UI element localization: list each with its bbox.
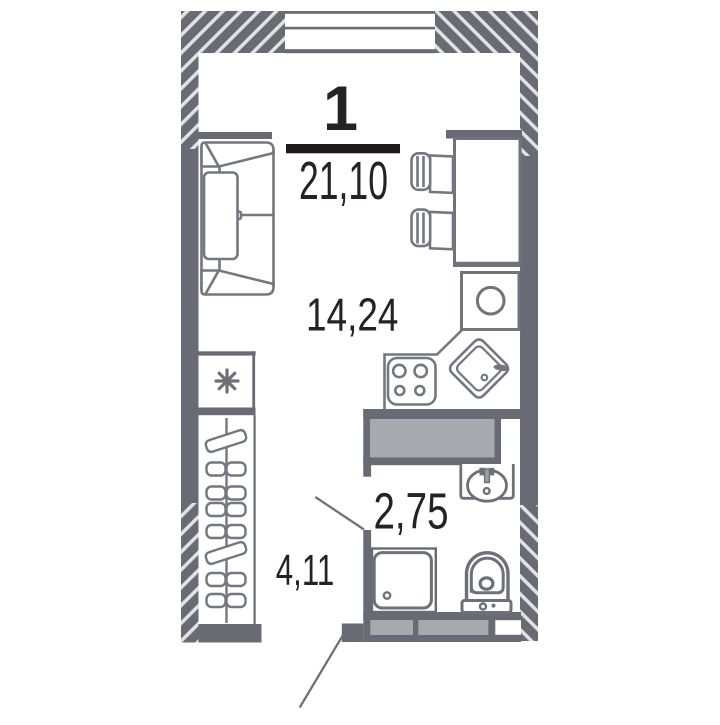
svg-text:14,24: 14,24 [306,289,399,341]
svg-text:2,75: 2,75 [374,483,449,540]
svg-text:4,11: 4,11 [276,547,335,595]
svg-text:1: 1 [323,74,358,144]
svg-text:21,10: 21,10 [299,152,388,211]
